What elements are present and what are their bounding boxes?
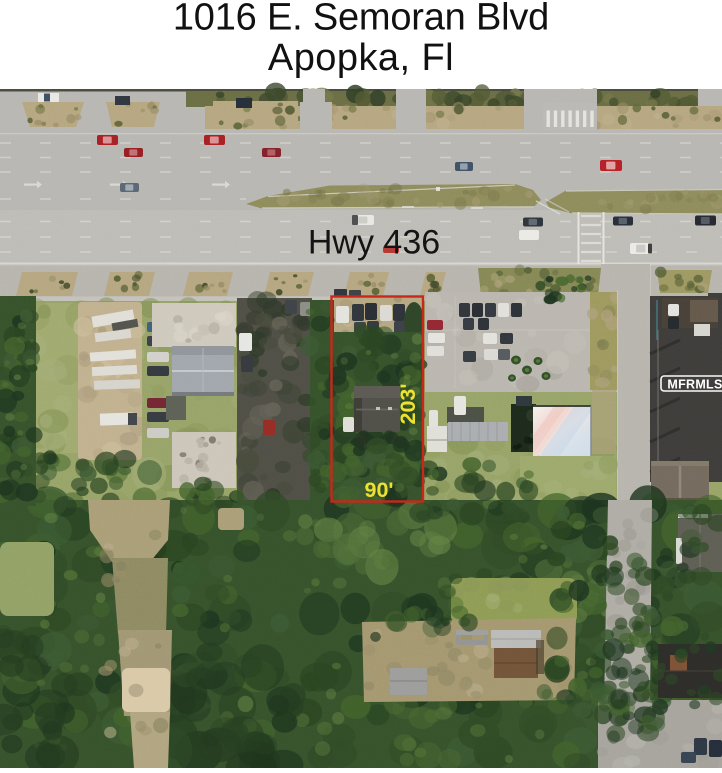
svg-text:90': 90' <box>364 478 393 502</box>
svg-text:203': 203' <box>396 384 420 425</box>
svg-text:Apopka, Fl: Apopka, Fl <box>268 37 454 79</box>
svg-text:1016 E. Semoran Blvd: 1016 E. Semoran Blvd <box>173 0 549 39</box>
